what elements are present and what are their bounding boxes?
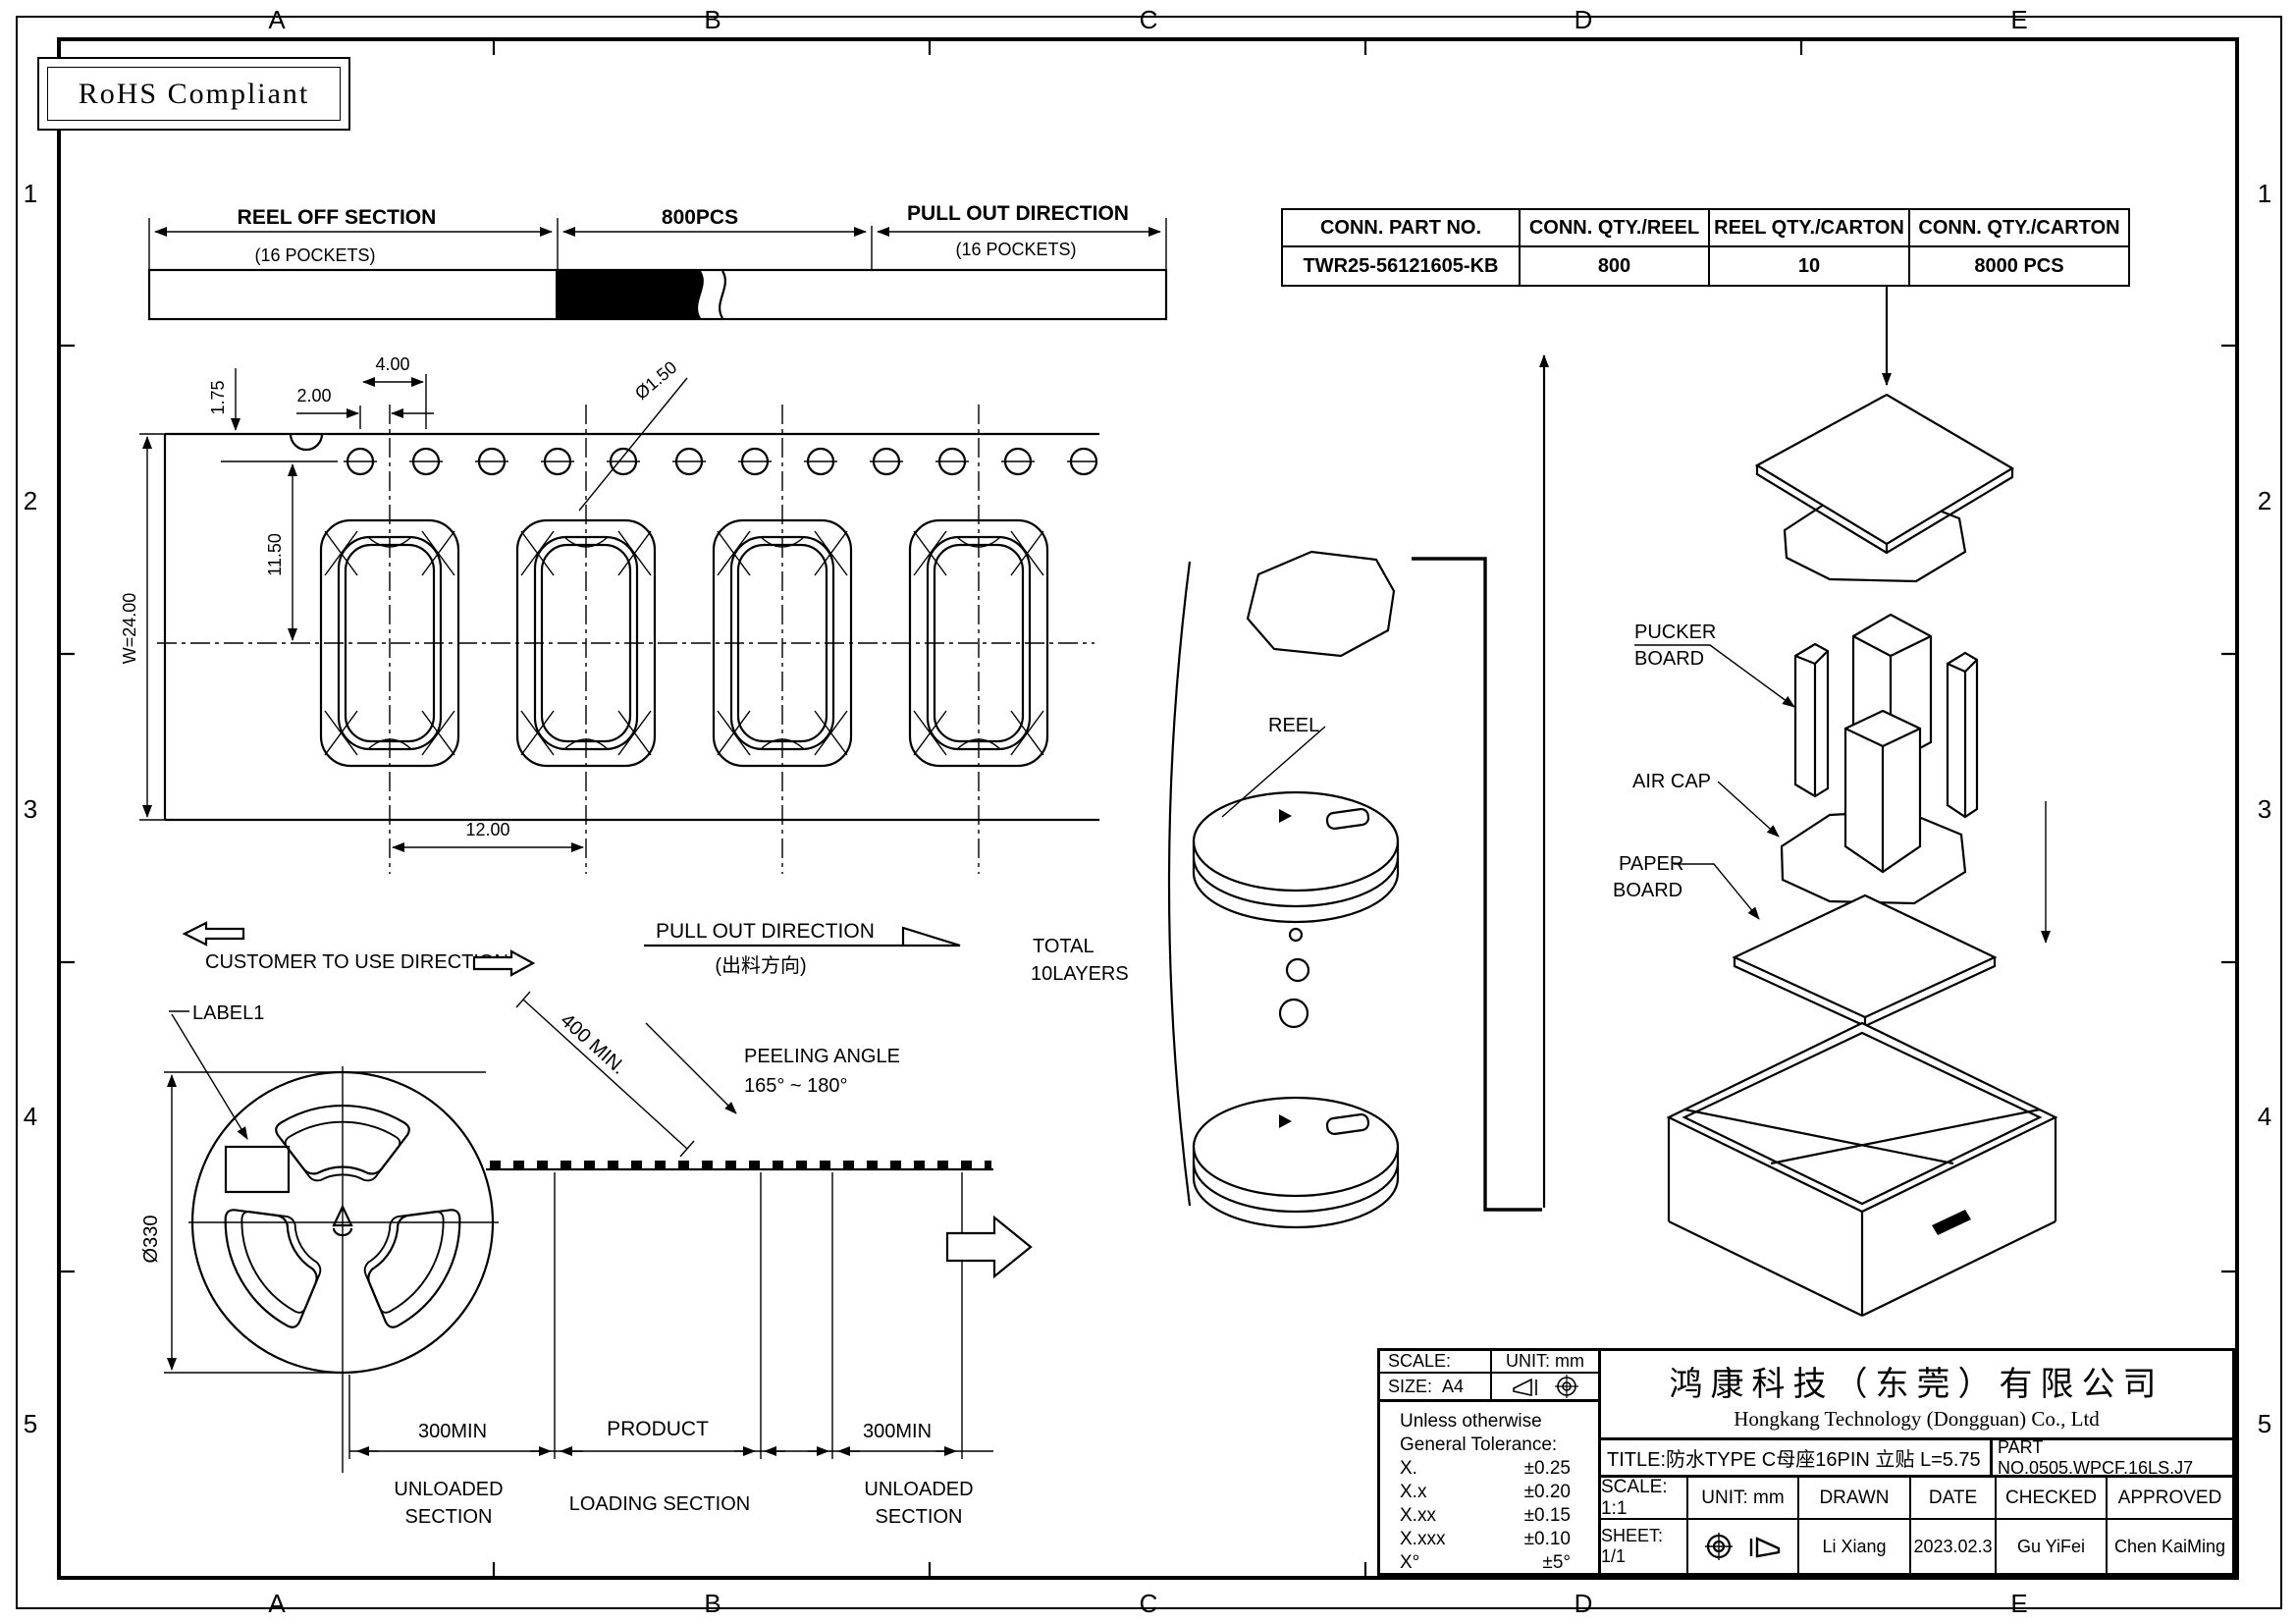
total-label: TOTAL xyxy=(1033,936,1095,957)
part-number: PART NO.0505.WPCF.16LS.J7 xyxy=(1993,1440,2232,1475)
customer-direction-label: CUSTOMER TO USE DIRECTION xyxy=(205,951,508,973)
dim-12-00: 12.00 xyxy=(465,820,509,839)
drawing-sheet: A B C D E A B C D E 1 2 3 4 5 1 2 3 4 5 xyxy=(0,0,2296,1623)
tape-pockets xyxy=(321,405,1047,874)
direction-labels: CUSTOMER TO USE DIRECTION PULL OUT DIREC… xyxy=(185,920,1129,985)
tolerance-block: Unless otherwise General Tolerance: X. ±… xyxy=(1380,1399,1598,1575)
rohs-label: RoHS Compliant xyxy=(47,67,341,121)
scale-value: SCALE: 1:1 xyxy=(1601,1478,1688,1518)
tolerance-row: X. ±0.25 xyxy=(1400,1457,1584,1481)
qty-800pcs-label: 800PCS xyxy=(662,206,738,229)
size-field: SIZE: A4 xyxy=(1380,1374,1492,1399)
packaging-exploded-view: PUCKER BOARD AIR CAP PAPER BOARD xyxy=(1613,395,2056,1316)
header-conn-qty-carton: CONN. QTY./CARTON xyxy=(1908,210,2128,247)
date-value: 2023.02.3 xyxy=(1911,1520,1997,1573)
pull-out-pockets-label: (16 POCKETS) xyxy=(955,240,1076,259)
dim-300min-left: 300MIN xyxy=(418,1421,487,1442)
unit-label: UNIT: mm xyxy=(1492,1351,1598,1372)
pucker-board-right xyxy=(1948,653,1977,817)
pucker-board-left xyxy=(1795,644,1828,796)
drawn-label: DRAWN xyxy=(1799,1478,1911,1518)
peeling-angle-label: PEELING ANGLE xyxy=(744,1046,900,1067)
unloaded-section-left-label: UNLOADED xyxy=(394,1479,503,1500)
tol-val: ±5° xyxy=(1542,1551,1571,1575)
tol-key: X. xyxy=(1400,1457,1417,1481)
unit-value: UNIT: mm xyxy=(1688,1478,1799,1518)
reel-label-sticker xyxy=(226,1147,289,1192)
dim-reel-diameter: Ø330 xyxy=(140,1216,162,1264)
tol-key: X.xx xyxy=(1400,1504,1436,1528)
pull-out-direction-label: PULL OUT DIRECTION xyxy=(907,202,1129,225)
date-label: DATE xyxy=(1911,1478,1997,1518)
scale-label: SCALE: xyxy=(1380,1351,1492,1372)
value-qty-carton: 8000 PCS xyxy=(1908,247,2128,285)
dim-2-00: 2.00 xyxy=(296,386,331,406)
tape-overview-strip: REEL OFF SECTION (16 POCKETS) 800PCS PUL… xyxy=(149,202,1166,319)
dim-11-50: 11.50 xyxy=(265,533,285,576)
unloaded-section-left-label2: SECTION xyxy=(405,1506,493,1528)
label1-callout: LABEL1 xyxy=(192,1002,264,1024)
tol-val: ±0.25 xyxy=(1524,1457,1571,1481)
tolerance-row: X.xx ±0.15 xyxy=(1400,1504,1584,1528)
header-reel-qty-carton: REEL QTY./CARTON xyxy=(1708,210,1908,247)
company-name-cn: 鸿康科技（东莞）有限公司 xyxy=(1670,1357,2164,1405)
title-block-left: SCALE: UNIT: mm SIZE: A4 xyxy=(1380,1351,1601,1573)
paper-board-callout2: BOARD xyxy=(1613,880,1682,901)
title-block: SCALE: UNIT: mm SIZE: A4 xyxy=(1377,1348,2235,1576)
reel-front-view: LABEL1 Ø330 400 MIN. PEELING ANGLE 165° … xyxy=(140,992,1031,1528)
paper-board-sheet xyxy=(1735,895,1995,1017)
tol-key: X.x xyxy=(1400,1481,1426,1504)
projection-symbols-bottom xyxy=(1688,1520,1799,1573)
size-value: A4 xyxy=(1442,1377,1464,1397)
value-reel-qty-carton: 10 xyxy=(1708,247,1908,285)
pull-out-direction-mid-label: PULL OUT DIRECTION xyxy=(656,920,875,943)
header-conn-qty-reel: CONN. QTY./REEL xyxy=(1519,210,1708,247)
size-label: SIZE: xyxy=(1388,1377,1432,1397)
company-name-en: Hongkang Technology (Dongguan) Co., Ltd xyxy=(1734,1407,2100,1432)
dim-1-75: 1.75 xyxy=(208,380,228,414)
cone-projection-icon xyxy=(1743,1533,1783,1560)
big-right-arrow-icon xyxy=(947,1217,1031,1276)
tolerance-row: X.x ±0.20 xyxy=(1400,1481,1584,1504)
projection-symbols xyxy=(1492,1374,1598,1399)
summary-table: CONN. PART NO. CONN. QTY./REEL REEL QTY.… xyxy=(1281,208,2130,287)
approved-label: APPROVED xyxy=(2108,1478,2232,1518)
sheet-value: SHEET: 1/1 xyxy=(1601,1520,1688,1573)
target-projection-icon xyxy=(1554,1374,1579,1399)
header-conn-part-no: CONN. PART NO. xyxy=(1283,210,1519,247)
value-part-no: TWR25-56121605-KB xyxy=(1283,247,1519,285)
target-projection-icon xyxy=(1704,1532,1734,1561)
carton-tape-mark xyxy=(1932,1210,1971,1235)
tol-val: ±0.15 xyxy=(1524,1504,1571,1528)
summary-table-header-row: CONN. PART NO. CONN. QTY./REEL REEL QTY.… xyxy=(1283,210,2128,247)
tolerance-row: X° ±5° xyxy=(1400,1551,1584,1575)
checked-value: Gu YiFei xyxy=(1997,1520,2108,1573)
product-section-label: PRODUCT xyxy=(607,1418,709,1440)
tol-val: ±0.10 xyxy=(1524,1528,1571,1551)
carrier-tape-detail: 1.75 2.00 4.00 Ø1.50 11.50 W=24.00 12.00 xyxy=(120,354,1099,847)
air-cap-callout: AIR CAP xyxy=(1632,771,1711,792)
tol-key: X° xyxy=(1400,1551,1419,1575)
tol-val: ±0.20 xyxy=(1524,1481,1571,1504)
drawn-value: Li Xiang xyxy=(1799,1520,1911,1573)
pucker-board-callout: PUCKER xyxy=(1634,622,1716,643)
reel-off-pockets-label: (16 POCKETS) xyxy=(254,245,375,265)
cone-projection-icon xyxy=(1511,1375,1544,1398)
dim-4-00: 4.00 xyxy=(375,354,409,374)
rohs-box: RoHS Compliant xyxy=(37,57,350,131)
reel-off-section-label: REEL OFF SECTION xyxy=(238,206,437,229)
pucker-board-callout2: BOARD xyxy=(1634,648,1704,670)
dim-hole-diameter: Ø1.50 xyxy=(631,357,680,404)
dim-300min-right: 300MIN xyxy=(863,1421,932,1442)
reel-callout: REEL xyxy=(1268,715,1319,736)
peeling-angle-value: 165° ~ 180° xyxy=(744,1075,848,1097)
pull-out-flag-icon xyxy=(903,928,960,946)
dim-tape-width: W=24.00 xyxy=(120,593,139,665)
drawing-title: TITLE:防水TYPE C母座16PIN 立贴 L=5.75 xyxy=(1601,1440,1993,1475)
tol-key: X.xxx xyxy=(1400,1528,1445,1551)
checked-label: CHECKED xyxy=(1997,1478,2108,1518)
title-block-right: 鸿康科技（东莞）有限公司 Hongkang Technology (Donggu… xyxy=(1601,1351,2232,1573)
unloaded-section-right-label: UNLOADED xyxy=(864,1479,973,1500)
unloaded-section-right-label2: SECTION xyxy=(876,1506,963,1528)
pull-out-direction-cn-label: (出料方向) xyxy=(715,954,806,977)
carton-lid xyxy=(1757,395,2012,544)
total-layers-label: 10LAYERS xyxy=(1031,963,1129,985)
summary-table-value-row: TWR25-56121605-KB 800 10 8000 PCS xyxy=(1283,247,2128,285)
bubble-wrap-top xyxy=(1248,552,1394,656)
left-direction-arrow-icon xyxy=(185,923,243,945)
value-qty-reel: 800 xyxy=(1519,247,1708,285)
tolerance-head-2: General Tolerance: xyxy=(1400,1434,1584,1457)
loading-section-label: LOADING SECTION xyxy=(569,1493,750,1515)
approved-value: Chen KaiMing xyxy=(2108,1520,2232,1573)
tolerance-head-1: Unless otherwise xyxy=(1400,1410,1584,1434)
dim-400-min: 400 MIN. xyxy=(556,1009,629,1079)
tolerance-row: X.xxx ±0.10 xyxy=(1400,1528,1584,1551)
